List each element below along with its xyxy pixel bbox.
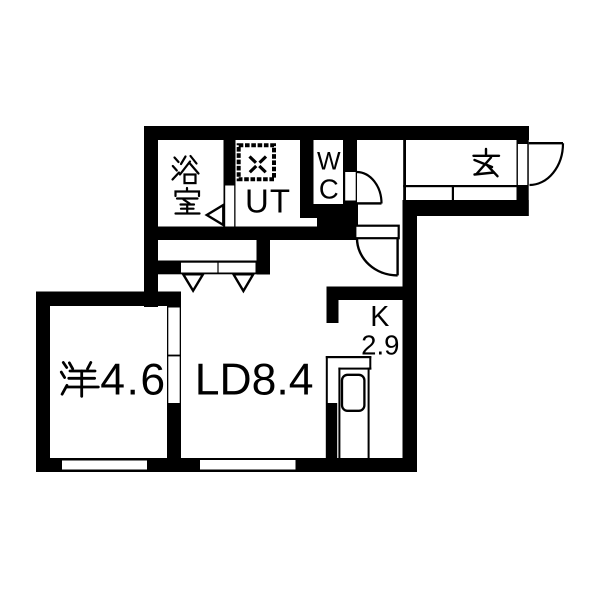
svg-text:2.9: 2.9: [361, 329, 399, 360]
svg-text:UT: UT: [245, 183, 291, 220]
svg-text:4.6: 4.6: [100, 356, 166, 405]
svg-text:C: C: [319, 174, 339, 205]
svg-text:W: W: [317, 148, 341, 176]
svg-text:K: K: [370, 301, 389, 333]
svg-text:LD8.4: LD8.4: [195, 356, 314, 405]
